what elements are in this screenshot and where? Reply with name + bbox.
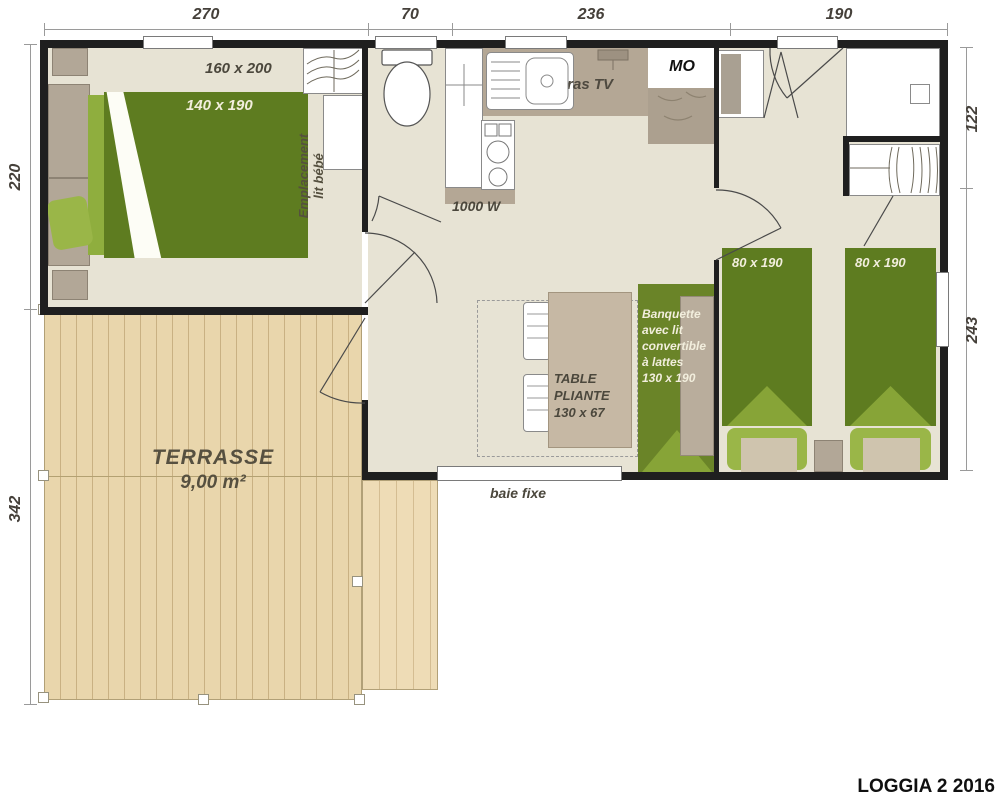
dim-left-342: 342 <box>7 479 25 539</box>
banquette-label-line3: convertible <box>642 338 718 354</box>
headboard-cabinet <box>48 84 90 178</box>
table-label: TABLE PLIANTE 130 x 67 <box>554 370 632 421</box>
fixed-bay-window <box>437 466 622 481</box>
banquette-label-line5: 130 x 190 <box>642 370 718 386</box>
dim-tick <box>730 23 731 36</box>
window-top-4 <box>777 36 838 49</box>
fixed-bay-label: baie fixe <box>490 485 600 501</box>
dim-tick <box>960 470 973 471</box>
twin-nightstand <box>814 440 843 472</box>
window-top-2 <box>375 36 437 49</box>
window-right <box>936 272 949 347</box>
dim-right-243: 243 <box>964 300 982 360</box>
table-label-line2: PLIANTE <box>554 387 632 404</box>
banquette-label-line2: avec lit <box>642 322 718 338</box>
dim-top-70: 70 <box>370 6 450 24</box>
wall-twin-partition-bottom <box>714 260 719 472</box>
bed-size-label: 140 x 190 <box>186 97 296 114</box>
hotplate-power-label: 1000 W <box>452 198 532 214</box>
window-top-3 <box>505 36 567 49</box>
floor-plan: 270 70 236 190 220 342 122 243 160 x 200… <box>0 0 1000 806</box>
deck-post <box>198 694 209 705</box>
dim-tick <box>24 309 37 310</box>
tv-arm-label: bras TV <box>558 76 653 93</box>
dim-tick <box>24 44 37 45</box>
wall-right <box>940 40 948 480</box>
deck-post <box>352 576 363 587</box>
nightstand <box>52 270 88 300</box>
table-label-line3: 130 x 67 <box>554 404 632 421</box>
terrace-deck-extension <box>362 480 438 690</box>
chair <box>523 302 551 360</box>
bathroom-niche <box>849 144 940 196</box>
kitchen-counter-left <box>445 48 483 188</box>
wall-left <box>40 40 48 315</box>
table-label-line1: TABLE <box>554 370 632 387</box>
deck-post <box>354 694 365 705</box>
room-size-label: 160 x 200 <box>205 60 315 77</box>
crib-label-line2: lit bébé <box>311 116 326 236</box>
window-top-1 <box>143 36 213 49</box>
dim-left-220: 220 <box>7 147 25 207</box>
chair <box>523 374 551 432</box>
twin-bed-2-label: 80 x 190 <box>855 255 931 270</box>
dim-top-236: 236 <box>551 6 631 24</box>
microwave-label: MO <box>648 58 716 76</box>
dim-tick <box>960 188 973 189</box>
fridge-grille <box>648 88 716 144</box>
dim-tick <box>452 23 453 36</box>
dim-tick <box>24 704 37 705</box>
wall-interior-bedroom <box>362 48 368 232</box>
dim-line-left <box>30 44 31 705</box>
dim-tick <box>368 23 369 36</box>
crib-space <box>323 95 366 170</box>
dim-tick <box>960 47 973 48</box>
terrace-deck <box>44 310 362 700</box>
dim-tick <box>44 23 45 36</box>
twin-bed-1-blanket <box>741 438 797 472</box>
plan-title: LOGGIA 2 2016 <box>790 776 995 798</box>
dim-tick <box>947 23 948 36</box>
wall-bedroom-bottom <box>40 307 368 315</box>
shower-drain <box>910 84 930 104</box>
deck-post <box>38 692 49 703</box>
crib-label-line1: Emplacement <box>296 116 311 236</box>
dim-right-122: 122 <box>964 89 982 149</box>
crib-label: Emplacement lit bébé <box>296 116 328 236</box>
wall-twin-partition-top <box>714 48 719 188</box>
terrace-name-label: TERRASSE <box>123 446 303 470</box>
dim-top-270: 270 <box>166 6 246 24</box>
banquette-label-line1: Banquette <box>642 306 718 322</box>
dim-top-190: 190 <box>799 6 879 24</box>
dim-line-top <box>44 29 948 30</box>
nightstand <box>52 48 88 76</box>
wardrobe-panel <box>721 54 741 114</box>
terrace-area-label: 9,00 m² <box>123 472 303 494</box>
wall-interior-living-terrace <box>362 400 368 472</box>
twin-bed-2-blanket <box>863 438 920 472</box>
twin-bed-1-label: 80 x 190 <box>732 255 808 270</box>
master-pillow <box>46 195 94 251</box>
banquette-label-line4: à lattes <box>642 354 718 370</box>
wall-bathroom-h <box>843 136 940 142</box>
stove <box>481 120 515 190</box>
deck-post <box>38 470 49 481</box>
wall-bathroom-v <box>843 136 849 196</box>
banquette-label: Banquette avec lit convertible à lattes … <box>642 306 718 386</box>
